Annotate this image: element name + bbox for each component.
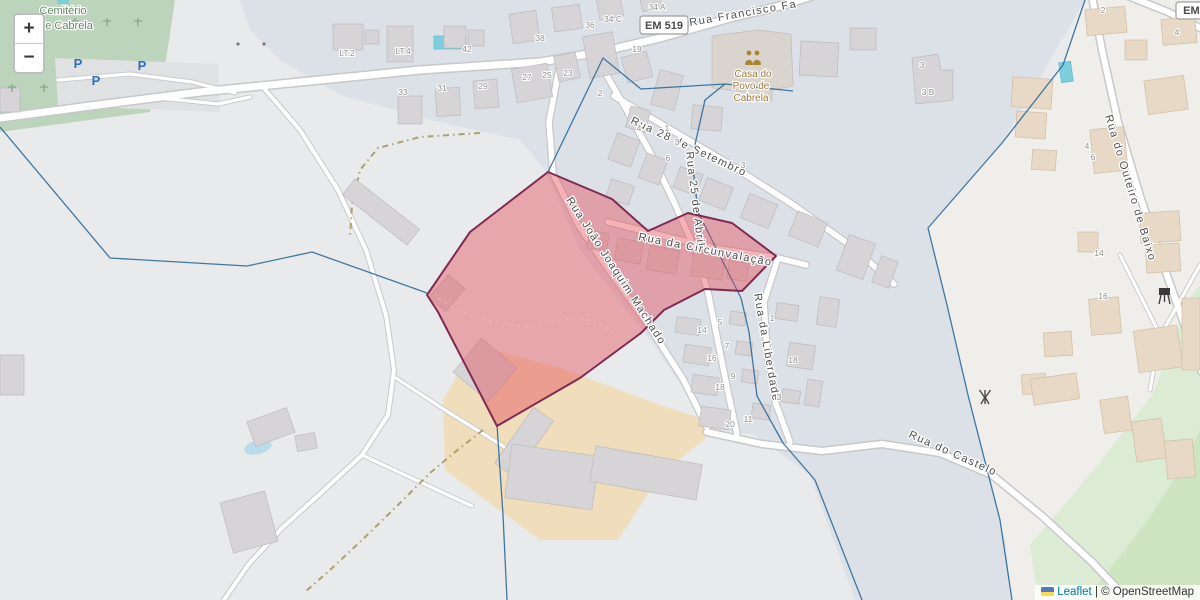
house-number: 1 bbox=[665, 123, 670, 133]
leaflet-link[interactable]: Leaflet bbox=[1057, 586, 1092, 598]
house-number: 1 bbox=[770, 313, 775, 323]
zoom-in-button[interactable]: + bbox=[15, 15, 43, 43]
house-number: 16 bbox=[707, 353, 717, 363]
attribution-bar: Leaflet | © OpenStreetMap bbox=[1035, 585, 1200, 600]
house-number: 38 bbox=[535, 33, 545, 43]
house-number: 3 bbox=[741, 160, 746, 170]
house-number: 31 bbox=[437, 83, 447, 93]
house-number: 2 bbox=[1101, 5, 1106, 15]
house-number: 25 bbox=[542, 70, 552, 80]
house-number: 34 C bbox=[604, 14, 622, 24]
attribution-separator: | bbox=[1095, 586, 1098, 598]
map-canvas[interactable]: EM 519 EM 5 Rua Francisco Fa Rua 28 de S… bbox=[0, 0, 1200, 600]
house-number: 4 bbox=[637, 123, 642, 133]
osm-copyright: © OpenStreetMap bbox=[1101, 586, 1194, 598]
cemetery-label-line1: Cemitério bbox=[39, 5, 86, 17]
house-number: 27 bbox=[522, 72, 532, 82]
house-number: 3 bbox=[920, 60, 925, 70]
zoom-control: + − bbox=[13, 13, 45, 74]
parking-icon: P bbox=[92, 73, 101, 88]
house-number: 14 bbox=[1094, 248, 1104, 258]
house-number: 6 bbox=[1091, 152, 1096, 162]
parking-icon: P bbox=[138, 58, 147, 73]
house-number: 16 bbox=[1098, 291, 1108, 301]
community-centre-label-line3: Cabrela bbox=[733, 93, 768, 104]
house-number: 14 bbox=[697, 325, 707, 335]
house-number: 36 bbox=[585, 20, 595, 30]
road-shield-em-topright: EM 5 bbox=[1176, 2, 1200, 19]
house-number: 33 bbox=[398, 87, 408, 97]
house-number: 18 bbox=[788, 355, 798, 365]
leaflet-map[interactable]: EM 519 EM 5 Rua Francisco Fa Rua 28 de S… bbox=[0, 0, 1200, 600]
house-number: 11 bbox=[744, 414, 753, 424]
road-shield-label: EM 5 bbox=[1183, 5, 1200, 17]
community-centre-label-line1: Casa do bbox=[734, 69, 772, 80]
house-number: 2 bbox=[598, 88, 603, 98]
house-number: 18 bbox=[715, 382, 725, 392]
cemetery-label-line2: de Cabrela bbox=[39, 20, 94, 32]
house-number: 9 bbox=[731, 371, 736, 381]
house-number: 23 bbox=[563, 68, 573, 78]
house-number: 3 bbox=[777, 392, 782, 402]
road-shield-em519: EM 519 bbox=[640, 16, 688, 34]
road-shield-label: EM 519 bbox=[645, 20, 683, 32]
house-number: 6 bbox=[666, 153, 671, 163]
house-number: 7 bbox=[725, 341, 730, 351]
house-number: 3 bbox=[675, 137, 680, 147]
zoom-out-button[interactable]: − bbox=[15, 43, 43, 72]
house-number: 4 bbox=[1085, 141, 1090, 151]
house-number: 3 B bbox=[922, 87, 935, 97]
house-number: LT.4 bbox=[395, 46, 411, 56]
house-number: 20 bbox=[725, 419, 735, 429]
house-number: 19 bbox=[632, 44, 642, 54]
flag-icon bbox=[1041, 587, 1054, 596]
house-number: LT.2 bbox=[339, 48, 355, 58]
parking-icon: P bbox=[74, 56, 83, 71]
house-number: 4 bbox=[1175, 27, 1180, 37]
community-centre-label-line2: Povo de bbox=[733, 81, 770, 92]
house-number: 29 bbox=[478, 81, 488, 91]
house-number: 34 A bbox=[648, 2, 665, 12]
house-number: 5 bbox=[718, 317, 723, 327]
house-number: 42 bbox=[462, 44, 472, 54]
